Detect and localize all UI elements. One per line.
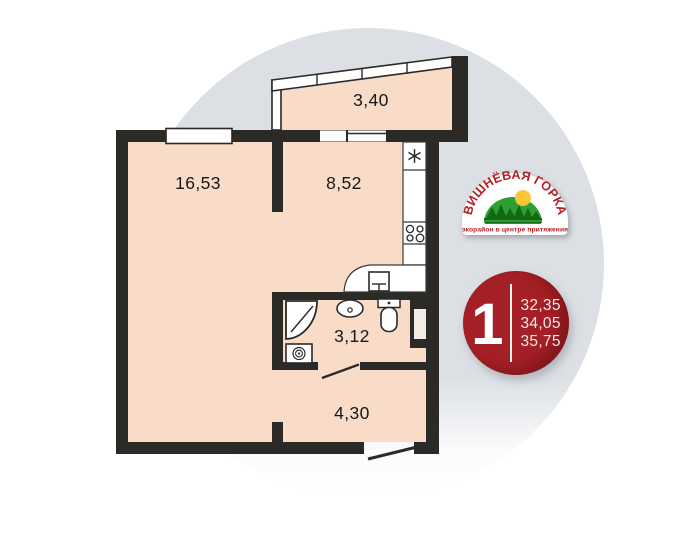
balcony-door-opening xyxy=(320,131,346,142)
area-label-kitchen: 8,52 xyxy=(299,173,389,194)
developer-logo: ВИШНЁВАЯ ГОРКА экорайон в центре притяже xyxy=(459,165,571,243)
rooms-count: 1 xyxy=(471,296,503,354)
logo-tagline: экорайон в центре притяжения xyxy=(462,226,568,234)
area-label-hallway: 4,30 xyxy=(307,403,397,424)
badge-areas: 32,35 34,05 35,75 xyxy=(520,297,560,351)
living-window xyxy=(166,129,232,144)
balcony-window xyxy=(348,131,386,142)
badge-area-main: 34,05 xyxy=(520,315,560,333)
area-label-bathroom: 3,12 xyxy=(307,326,397,347)
sun-icon xyxy=(515,190,531,206)
badge-divider xyxy=(510,284,512,362)
floorplan-marketing-image: 3,40 16,53 8,52 3,12 4,30 ВИШНЁВАЯ ГОРКА xyxy=(0,0,700,536)
area-label-living-room: 16,53 xyxy=(153,173,243,194)
area-label-balcony: 3,40 xyxy=(326,90,416,111)
badge-area-total: 35,75 xyxy=(520,333,560,351)
bathroom-sink-icon xyxy=(337,300,363,317)
entrance-door-swing xyxy=(368,447,419,460)
badge-area-living: 32,35 xyxy=(520,297,560,315)
vent-shaft xyxy=(410,300,426,348)
apartment-info-badge: 1 32,35 34,05 35,75 xyxy=(463,271,569,375)
developer-logo-art: ВИШНЁВАЯ ГОРКА экорайон в центре притяже xyxy=(459,165,571,243)
floor-plan xyxy=(0,0,700,536)
kitchen-sink-icon xyxy=(369,272,389,291)
